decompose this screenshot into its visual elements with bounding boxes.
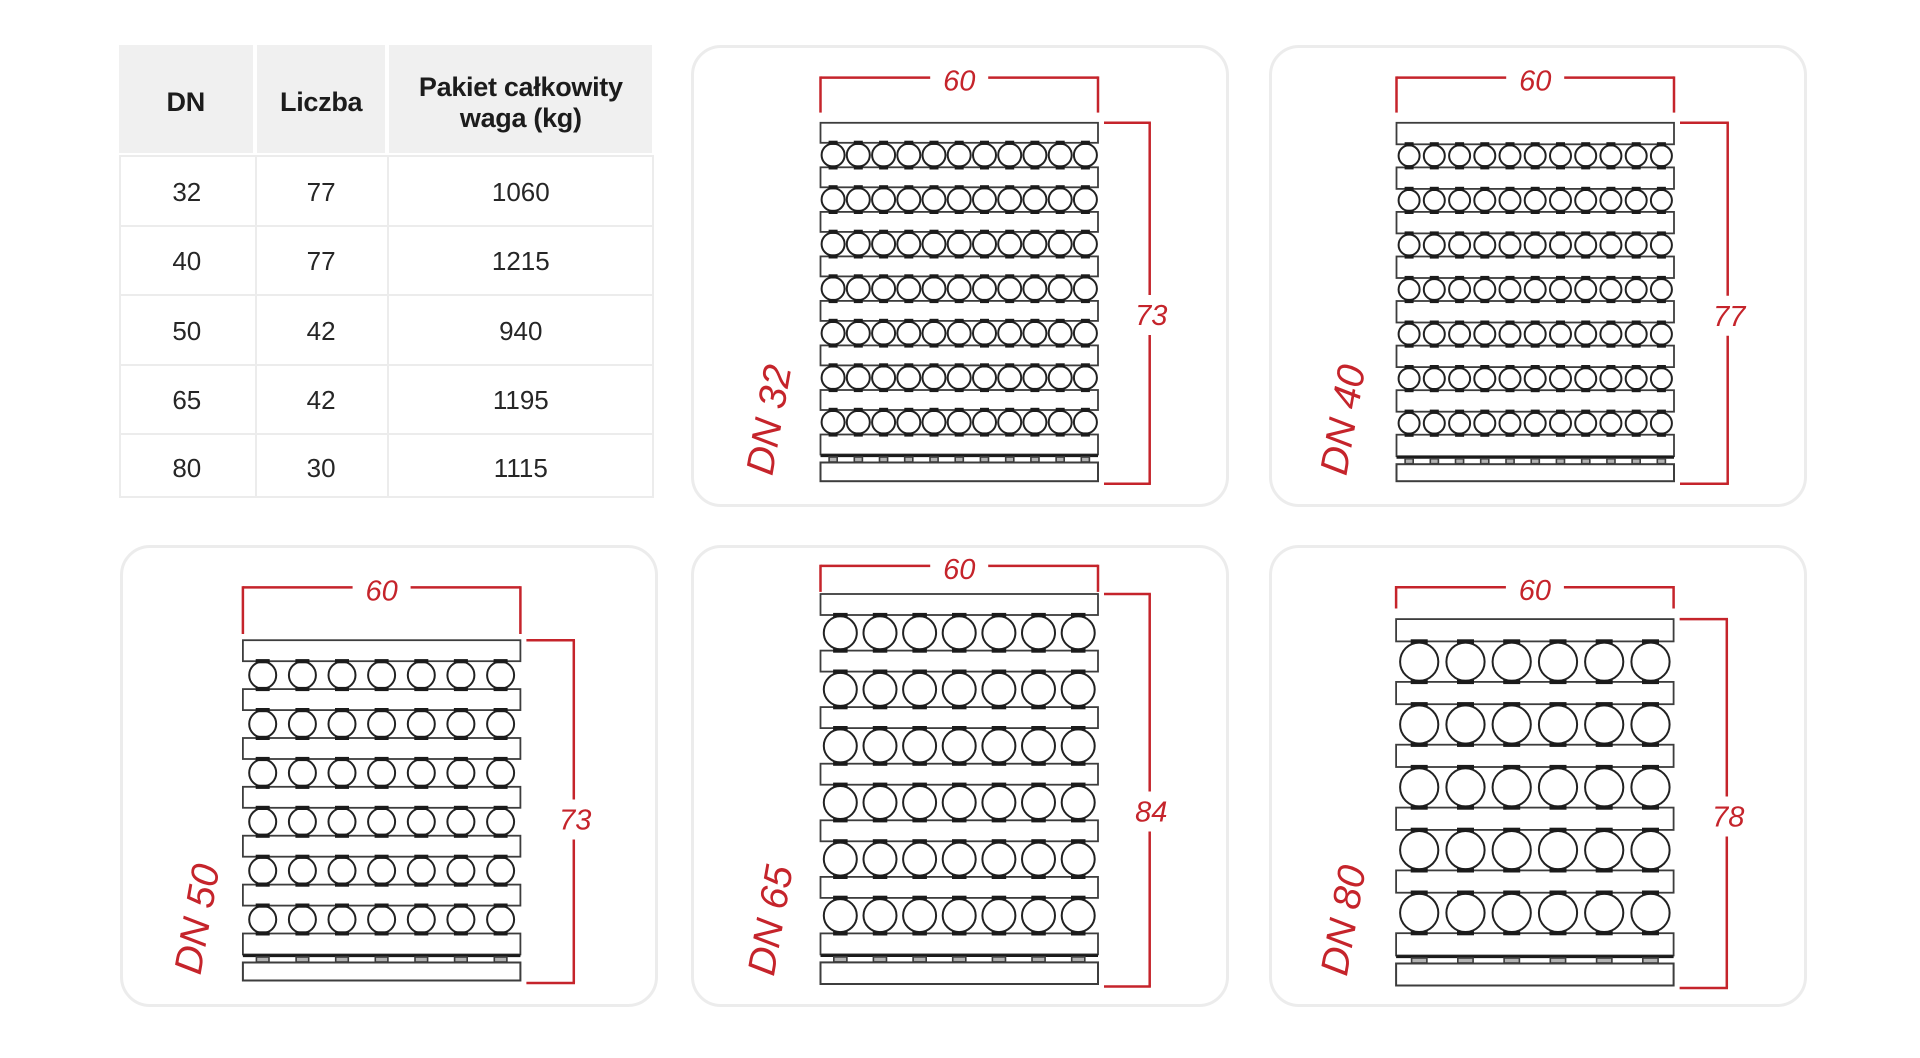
svg-text:60: 60 bbox=[943, 553, 975, 585]
svg-text:73: 73 bbox=[559, 804, 591, 836]
svg-text:DN 32: DN 32 bbox=[739, 361, 801, 478]
svg-text:DN 80: DN 80 bbox=[1313, 861, 1375, 978]
svg-text:DN 50: DN 50 bbox=[167, 860, 229, 977]
svg-text:60: 60 bbox=[365, 575, 397, 607]
svg-text:60: 60 bbox=[943, 66, 975, 98]
svg-text:DN 65: DN 65 bbox=[740, 861, 802, 978]
svg-text:73: 73 bbox=[1135, 300, 1167, 332]
svg-text:60: 60 bbox=[1518, 575, 1550, 607]
svg-text:77: 77 bbox=[1713, 301, 1747, 333]
svg-text:84: 84 bbox=[1135, 796, 1167, 828]
svg-text:DN 40: DN 40 bbox=[1312, 361, 1374, 478]
svg-text:60: 60 bbox=[1519, 66, 1551, 98]
svg-text:78: 78 bbox=[1712, 801, 1744, 833]
